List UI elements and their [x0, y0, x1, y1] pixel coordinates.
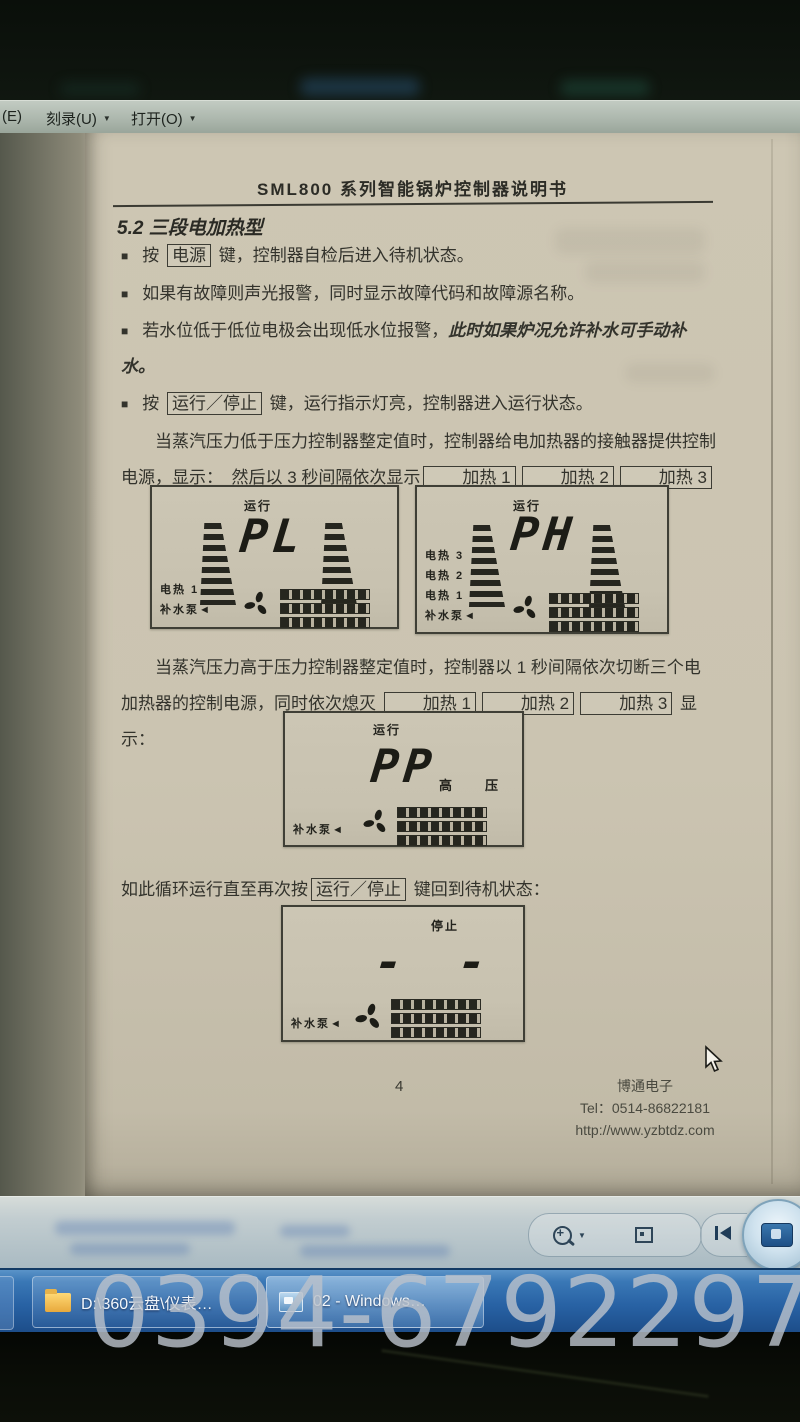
lcd-left-bargraph	[200, 523, 236, 605]
previous-icon	[720, 1226, 731, 1240]
menu-burn[interactable]: 刻录(U) ▼	[46, 108, 111, 129]
menu-open[interactable]: 打开(O) ▼	[131, 108, 197, 129]
title-underline	[113, 201, 713, 207]
bullet-fault: 如果有故障则声光报警，同时显示故障代码和故障源名称。	[121, 276, 717, 312]
slideshow-icon	[761, 1223, 793, 1247]
menu-email-label: (E)	[2, 108, 22, 125]
footer-contact-block: 博通电子 Tel：0514-86822181 http://www.yzbtdz…	[515, 1075, 775, 1141]
desk-reflection	[381, 1349, 708, 1398]
lcd-status-label: 停止	[431, 917, 459, 934]
lcd-main-reading: - -	[372, 935, 503, 989]
water-level-bars	[391, 999, 481, 1038]
taskbar-button-folder[interactable]: D:\360云盘\仪表…	[32, 1276, 258, 1328]
doc-title: SML800 系列智能锅炉控制器说明书	[115, 175, 710, 200]
screen-reflection	[300, 78, 420, 96]
scanned-document-page: SML800 系列智能锅炉控制器说明书 5.2 三段电加热型 按 电源 键，控制…	[85, 133, 800, 1196]
slideshow-button[interactable]	[742, 1199, 800, 1271]
magnifier-plus-icon	[553, 1226, 572, 1245]
actual-size-icon	[635, 1227, 653, 1243]
lcd-feedpump-label: 补水泵◄	[293, 821, 345, 837]
footer-company: 博通电子	[515, 1075, 775, 1097]
footer-telephone: Tel：0514-86822181	[515, 1097, 775, 1119]
page-crease	[771, 139, 773, 1184]
lcd-heater3-label: 电热 3	[425, 547, 464, 563]
lcd-heater1-label: 电热 1	[160, 581, 199, 597]
photo-viewing-area: SML800 系列智能锅炉控制器说明书 5.2 三段电加热型 按 电源 键，控制…	[0, 133, 800, 1196]
lcd-high-pressure-label: 高 压	[439, 775, 508, 794]
lcd-status-label: 运行	[373, 721, 401, 738]
text: 如果有故障则声光报警，同时显示故障代码和故障源名称。	[142, 284, 584, 303]
section-title: 5.2 三段电加热型	[117, 213, 263, 240]
previous-group	[700, 1213, 747, 1257]
page-number: 4	[395, 1078, 403, 1095]
photo-viewer-menubar: (E) 刻录(U) ▼ 打开(O) ▼	[0, 100, 800, 136]
water-level-bars	[280, 589, 370, 628]
line-cycle-run: 如此循环运行直至再次按运行／停止 键回到待机状态：	[121, 872, 717, 908]
mouse-cursor-icon	[703, 1045, 727, 1075]
monitor-top-bezel	[0, 0, 800, 100]
previous-icon	[715, 1226, 718, 1240]
lcd-main-reading: PP	[368, 739, 439, 793]
text: 若水位低于低位电极会出现低水位报警，	[142, 321, 448, 340]
actual-size-button[interactable]	[633, 1226, 655, 1244]
chevron-down-icon: ▼	[103, 114, 111, 123]
bullet-water-level: 若水位低于低位电极会出现低水位报警，此时如果炉况允许补水可手动补水。	[121, 313, 717, 385]
screen-reflection	[560, 80, 650, 96]
lcd-left-bargraph	[469, 525, 505, 607]
windows-taskbar: D:\360云盘\仪表… 02 - Windows…	[0, 1268, 800, 1334]
screen-reflection	[60, 82, 140, 96]
water-level-bars	[549, 593, 639, 632]
reflection-smear	[55, 1221, 235, 1235]
water-level-bars	[397, 807, 487, 846]
lcd-feedpump-label: 补水泵◄	[160, 601, 212, 617]
desk-area	[0, 1332, 800, 1422]
text: 按	[142, 246, 159, 265]
taskbar-button-cropped[interactable]	[0, 1276, 14, 1330]
text: 键，控制器自检后进入待机状态。	[219, 246, 474, 265]
taskbar-button-label: 02 - Windows…	[313, 1293, 426, 1311]
run-stop-key-label: 运行／停止	[167, 392, 262, 415]
fan-icon	[244, 591, 270, 617]
zoom-fit-group: ▼	[528, 1213, 702, 1257]
fan-icon	[513, 595, 539, 621]
heat3-key: 加热 3	[580, 692, 672, 715]
reflection-smear	[70, 1243, 190, 1255]
photo-viewer-icon	[279, 1292, 303, 1312]
lcd-heater2-label: 电热 2	[425, 567, 464, 583]
chevron-down-icon: ▼	[189, 114, 197, 123]
menu-open-label: 打开(O)	[131, 108, 183, 129]
lcd-heater1-label: 电热 1	[425, 587, 464, 603]
fan-icon	[355, 1003, 383, 1031]
photo-viewer-controlbar: ▼	[0, 1196, 800, 1269]
lcd-display-pp: 运行 PP 高 压 补水泵◄	[283, 711, 524, 847]
lcd-display-standby: 停止 - - 补水泵◄	[281, 905, 525, 1042]
text: 如此循环运行直至再次按	[121, 880, 308, 899]
menu-email-partial[interactable]: (E)	[2, 108, 22, 125]
taskbar-button-label: D:\360云盘\仪表…	[81, 1290, 213, 1314]
zoom-button[interactable]: ▼	[553, 1223, 597, 1247]
text: 键，运行指示灯亮，控制器进入运行状态。	[270, 394, 593, 413]
reflection-smear	[280, 1225, 350, 1237]
run-stop-key-label: 运行／停止	[311, 878, 406, 901]
lcd-feedpump-label: 补水泵◄	[425, 607, 477, 623]
folder-icon	[45, 1293, 71, 1312]
bullet-power: 按 电源 键，控制器自检后进入待机状态。	[121, 238, 717, 274]
chevron-down-icon[interactable]: ▼	[578, 1231, 586, 1240]
lcd-main-reading: PL	[237, 509, 308, 563]
taskbar-button-photo-viewer[interactable]: 02 - Windows…	[266, 1276, 484, 1328]
reflection-smear	[300, 1245, 450, 1257]
lcd-main-reading: PH	[508, 507, 579, 561]
lcd-display-pl: 运行 PL 电热 1 补水泵◄	[150, 485, 399, 629]
lcd-display-ph: 运行 PH 电热 3 电热 2 电热 1 补水泵◄	[415, 485, 669, 634]
footer-url: http://www.yzbtdz.com	[515, 1119, 775, 1141]
text: 键回到待机状态：	[414, 880, 550, 899]
fan-icon	[363, 809, 389, 835]
text: 按	[142, 394, 159, 413]
menu-burn-label: 刻录(U)	[46, 108, 97, 129]
bullet-run-stop: 按 运行／停止 键，运行指示灯亮，控制器进入运行状态。	[121, 386, 717, 422]
power-key-label: 电源	[167, 244, 211, 267]
previous-button[interactable]	[715, 1226, 731, 1240]
lcd-feedpump-label: 补水泵◄	[291, 1015, 343, 1031]
